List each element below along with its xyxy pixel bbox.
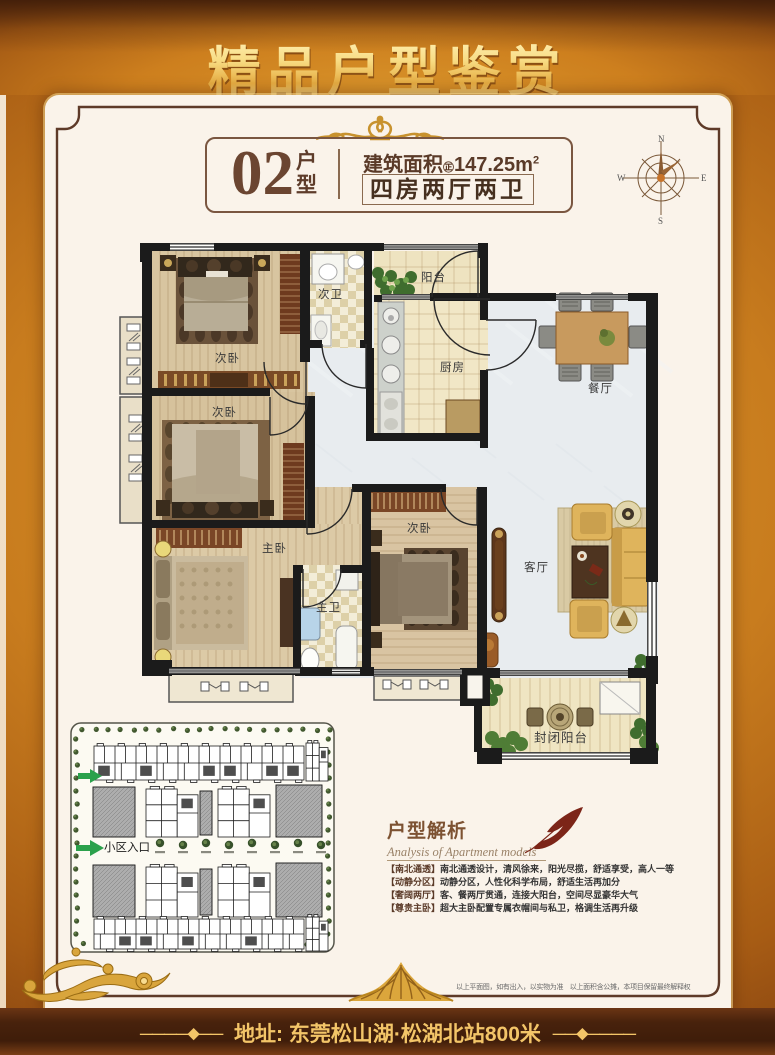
svg-text:客厅: 客厅 [524, 560, 549, 574]
svg-text:小区入口: 小区入口 [104, 841, 150, 854]
svg-text:阳台: 阳台 [421, 270, 446, 284]
svg-text:次卧: 次卧 [407, 521, 432, 535]
svg-text:次卧: 次卧 [215, 351, 240, 365]
svg-text:封闭阳台: 封闭阳台 [534, 730, 588, 745]
svg-text:次卧: 次卧 [212, 405, 237, 419]
svg-text:厨房: 厨房 [440, 361, 465, 374]
svg-text:主卫: 主卫 [316, 601, 341, 614]
svg-text:餐厅: 餐厅 [588, 381, 613, 395]
svg-text:主卧: 主卧 [262, 542, 287, 555]
svg-text:次卫: 次卫 [318, 287, 343, 301]
